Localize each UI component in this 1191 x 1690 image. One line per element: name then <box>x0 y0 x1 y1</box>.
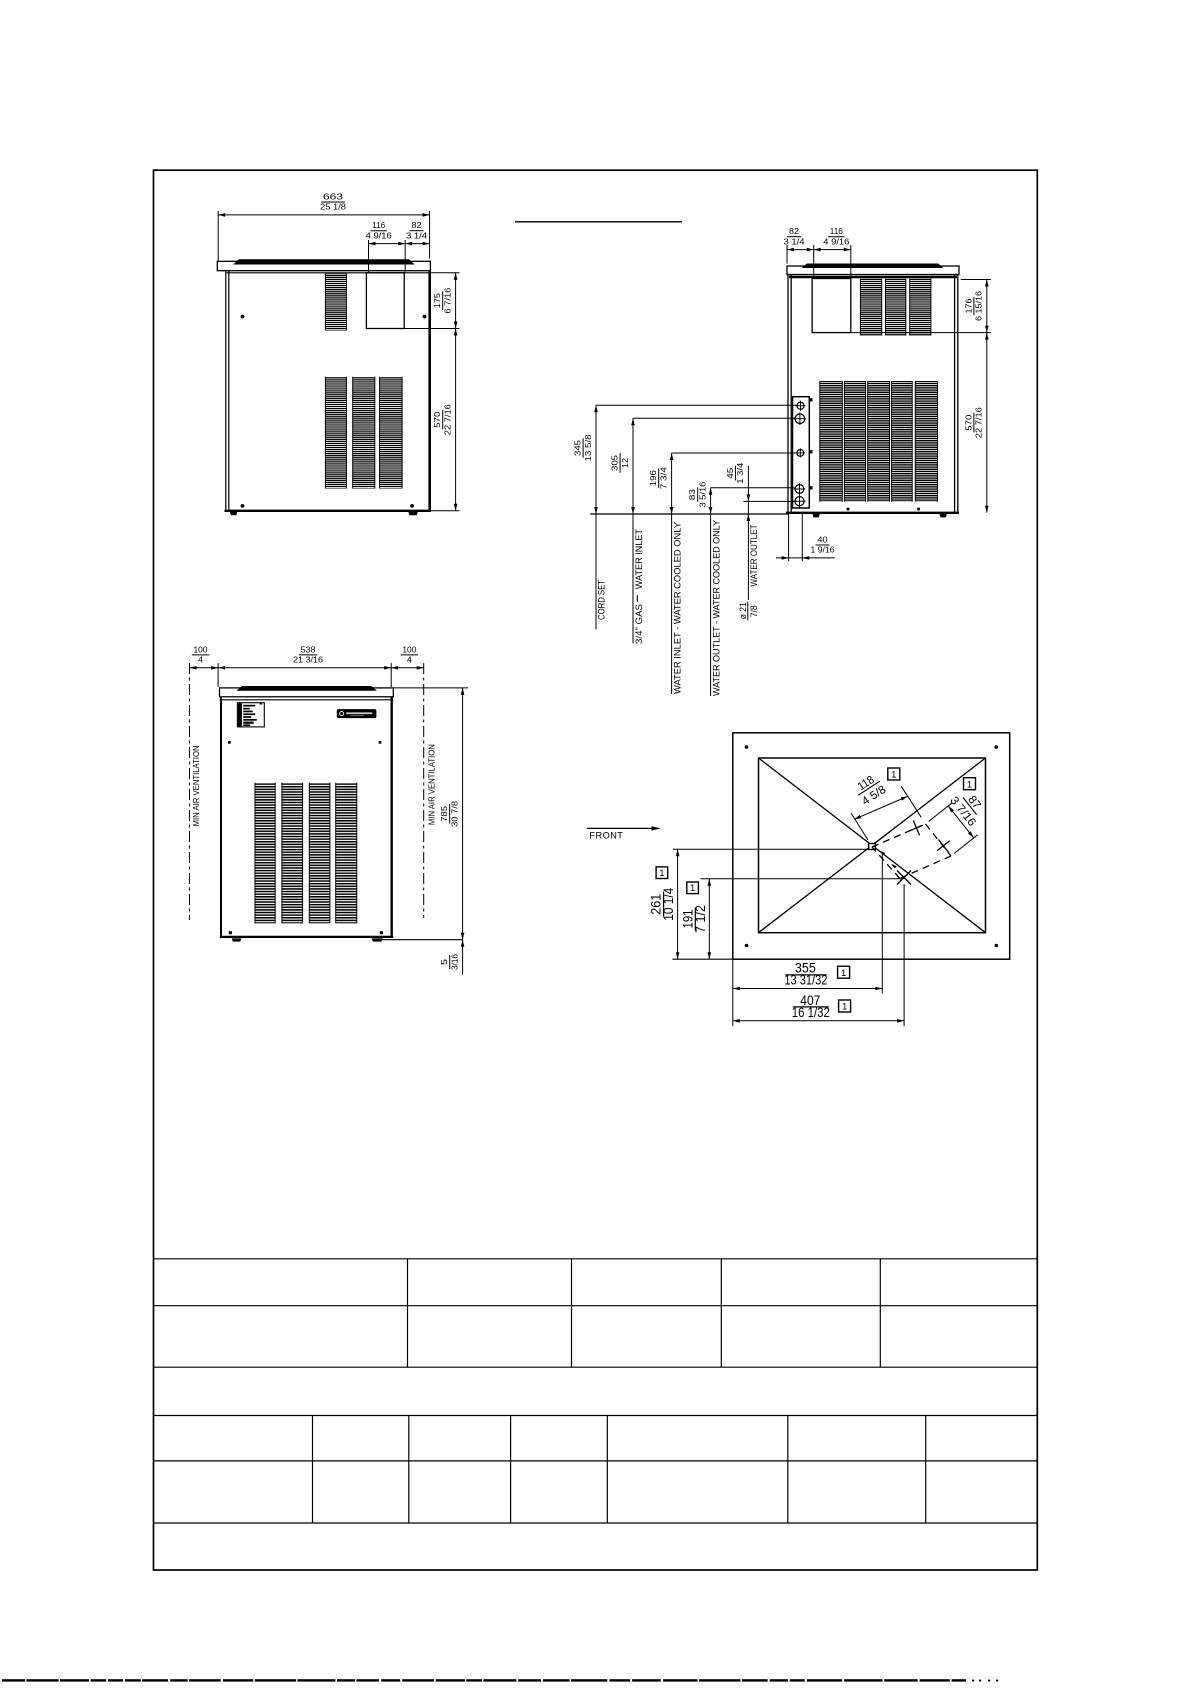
svg-text:1 9/16: 1 9/16 <box>811 545 835 555</box>
svg-text:1: 1 <box>891 770 896 781</box>
svg-text:100: 100 <box>194 644 208 654</box>
svg-text:7 3/4: 7 3/4 <box>658 467 668 489</box>
svg-text:82: 82 <box>789 226 799 236</box>
svg-text:3/4" GAS: 3/4" GAS <box>634 604 645 644</box>
svg-text:570: 570 <box>963 414 973 430</box>
svg-text:WATER INLET: WATER INLET <box>634 529 645 589</box>
svg-text:305: 305 <box>610 455 620 471</box>
svg-text:196: 196 <box>648 470 658 486</box>
svg-text:13 5/8: 13 5/8 <box>583 434 593 461</box>
svg-text:3/16: 3/16 <box>449 954 459 970</box>
svg-text:6 7/16: 6 7/16 <box>442 287 452 313</box>
svg-text:1: 1 <box>690 883 695 894</box>
svg-text:1: 1 <box>841 968 846 979</box>
svg-text:1 3/4: 1 3/4 <box>735 462 745 483</box>
svg-text:13 31/32: 13 31/32 <box>784 973 827 988</box>
svg-text:176: 176 <box>963 298 973 313</box>
svg-text:22 7/16: 22 7/16 <box>974 407 984 438</box>
svg-text:WATER INLET - WATER COOLED ONL: WATER INLET - WATER COOLED ONLY <box>672 521 683 694</box>
svg-text:4: 4 <box>198 655 203 665</box>
svg-text:10 1/4: 10 1/4 <box>661 887 676 920</box>
svg-text:116: 116 <box>372 220 385 230</box>
svg-text:22 7/16: 22 7/16 <box>442 404 452 435</box>
svg-text:4 9/16: 4 9/16 <box>823 236 849 246</box>
svg-text:116: 116 <box>830 226 843 236</box>
svg-text:345: 345 <box>573 440 583 456</box>
svg-text:570: 570 <box>432 411 442 427</box>
svg-text:CORD SET: CORD SET <box>597 580 608 620</box>
svg-text:100: 100 <box>402 644 416 654</box>
svg-text:12: 12 <box>620 458 630 468</box>
svg-text:4: 4 <box>407 655 412 665</box>
svg-text:6 15/16: 6 15/16 <box>974 291 984 321</box>
svg-text:21 3/16: 21 3/16 <box>293 655 323 665</box>
svg-text:7 1/2: 7 1/2 <box>693 905 708 933</box>
svg-text:538: 538 <box>301 644 316 654</box>
svg-text:FRONT: FRONT <box>589 831 623 842</box>
svg-text:WATER OUTLET: WATER OUTLET <box>749 524 760 586</box>
svg-text:175: 175 <box>432 293 442 308</box>
svg-text:ø 21: ø 21 <box>738 602 749 619</box>
svg-text:83: 83 <box>687 489 697 500</box>
svg-text:785: 785 <box>439 806 449 822</box>
svg-text:3 1/4: 3 1/4 <box>406 230 427 240</box>
svg-text:MIN AIR VENTILATION: MIN AIR VENTILATION <box>427 744 437 825</box>
svg-text:16 1/32: 16 1/32 <box>792 1005 830 1020</box>
svg-text:663: 663 <box>323 192 343 202</box>
svg-text:3 1/4: 3 1/4 <box>784 236 805 246</box>
svg-text:82: 82 <box>412 220 422 230</box>
svg-text:WATER OUTLET - WATER COOLED ON: WATER OUTLET - WATER COOLED ONLY <box>711 519 722 696</box>
svg-text:7/8: 7/8 <box>749 605 760 617</box>
svg-text:MIN AIR VENTILATION: MIN AIR VENTILATION <box>191 745 201 826</box>
svg-text:25 1/8: 25 1/8 <box>320 202 346 212</box>
svg-text:1: 1 <box>967 779 972 790</box>
svg-text:40: 40 <box>818 535 828 545</box>
svg-text:4 9/16: 4 9/16 <box>366 230 392 240</box>
svg-text:1: 1 <box>659 868 664 879</box>
svg-text:1: 1 <box>842 1002 847 1013</box>
svg-text:5: 5 <box>439 959 449 965</box>
svg-text:45: 45 <box>725 467 735 478</box>
svg-text:30 7/8: 30 7/8 <box>449 801 459 827</box>
svg-text:3 5/16: 3 5/16 <box>697 481 707 507</box>
